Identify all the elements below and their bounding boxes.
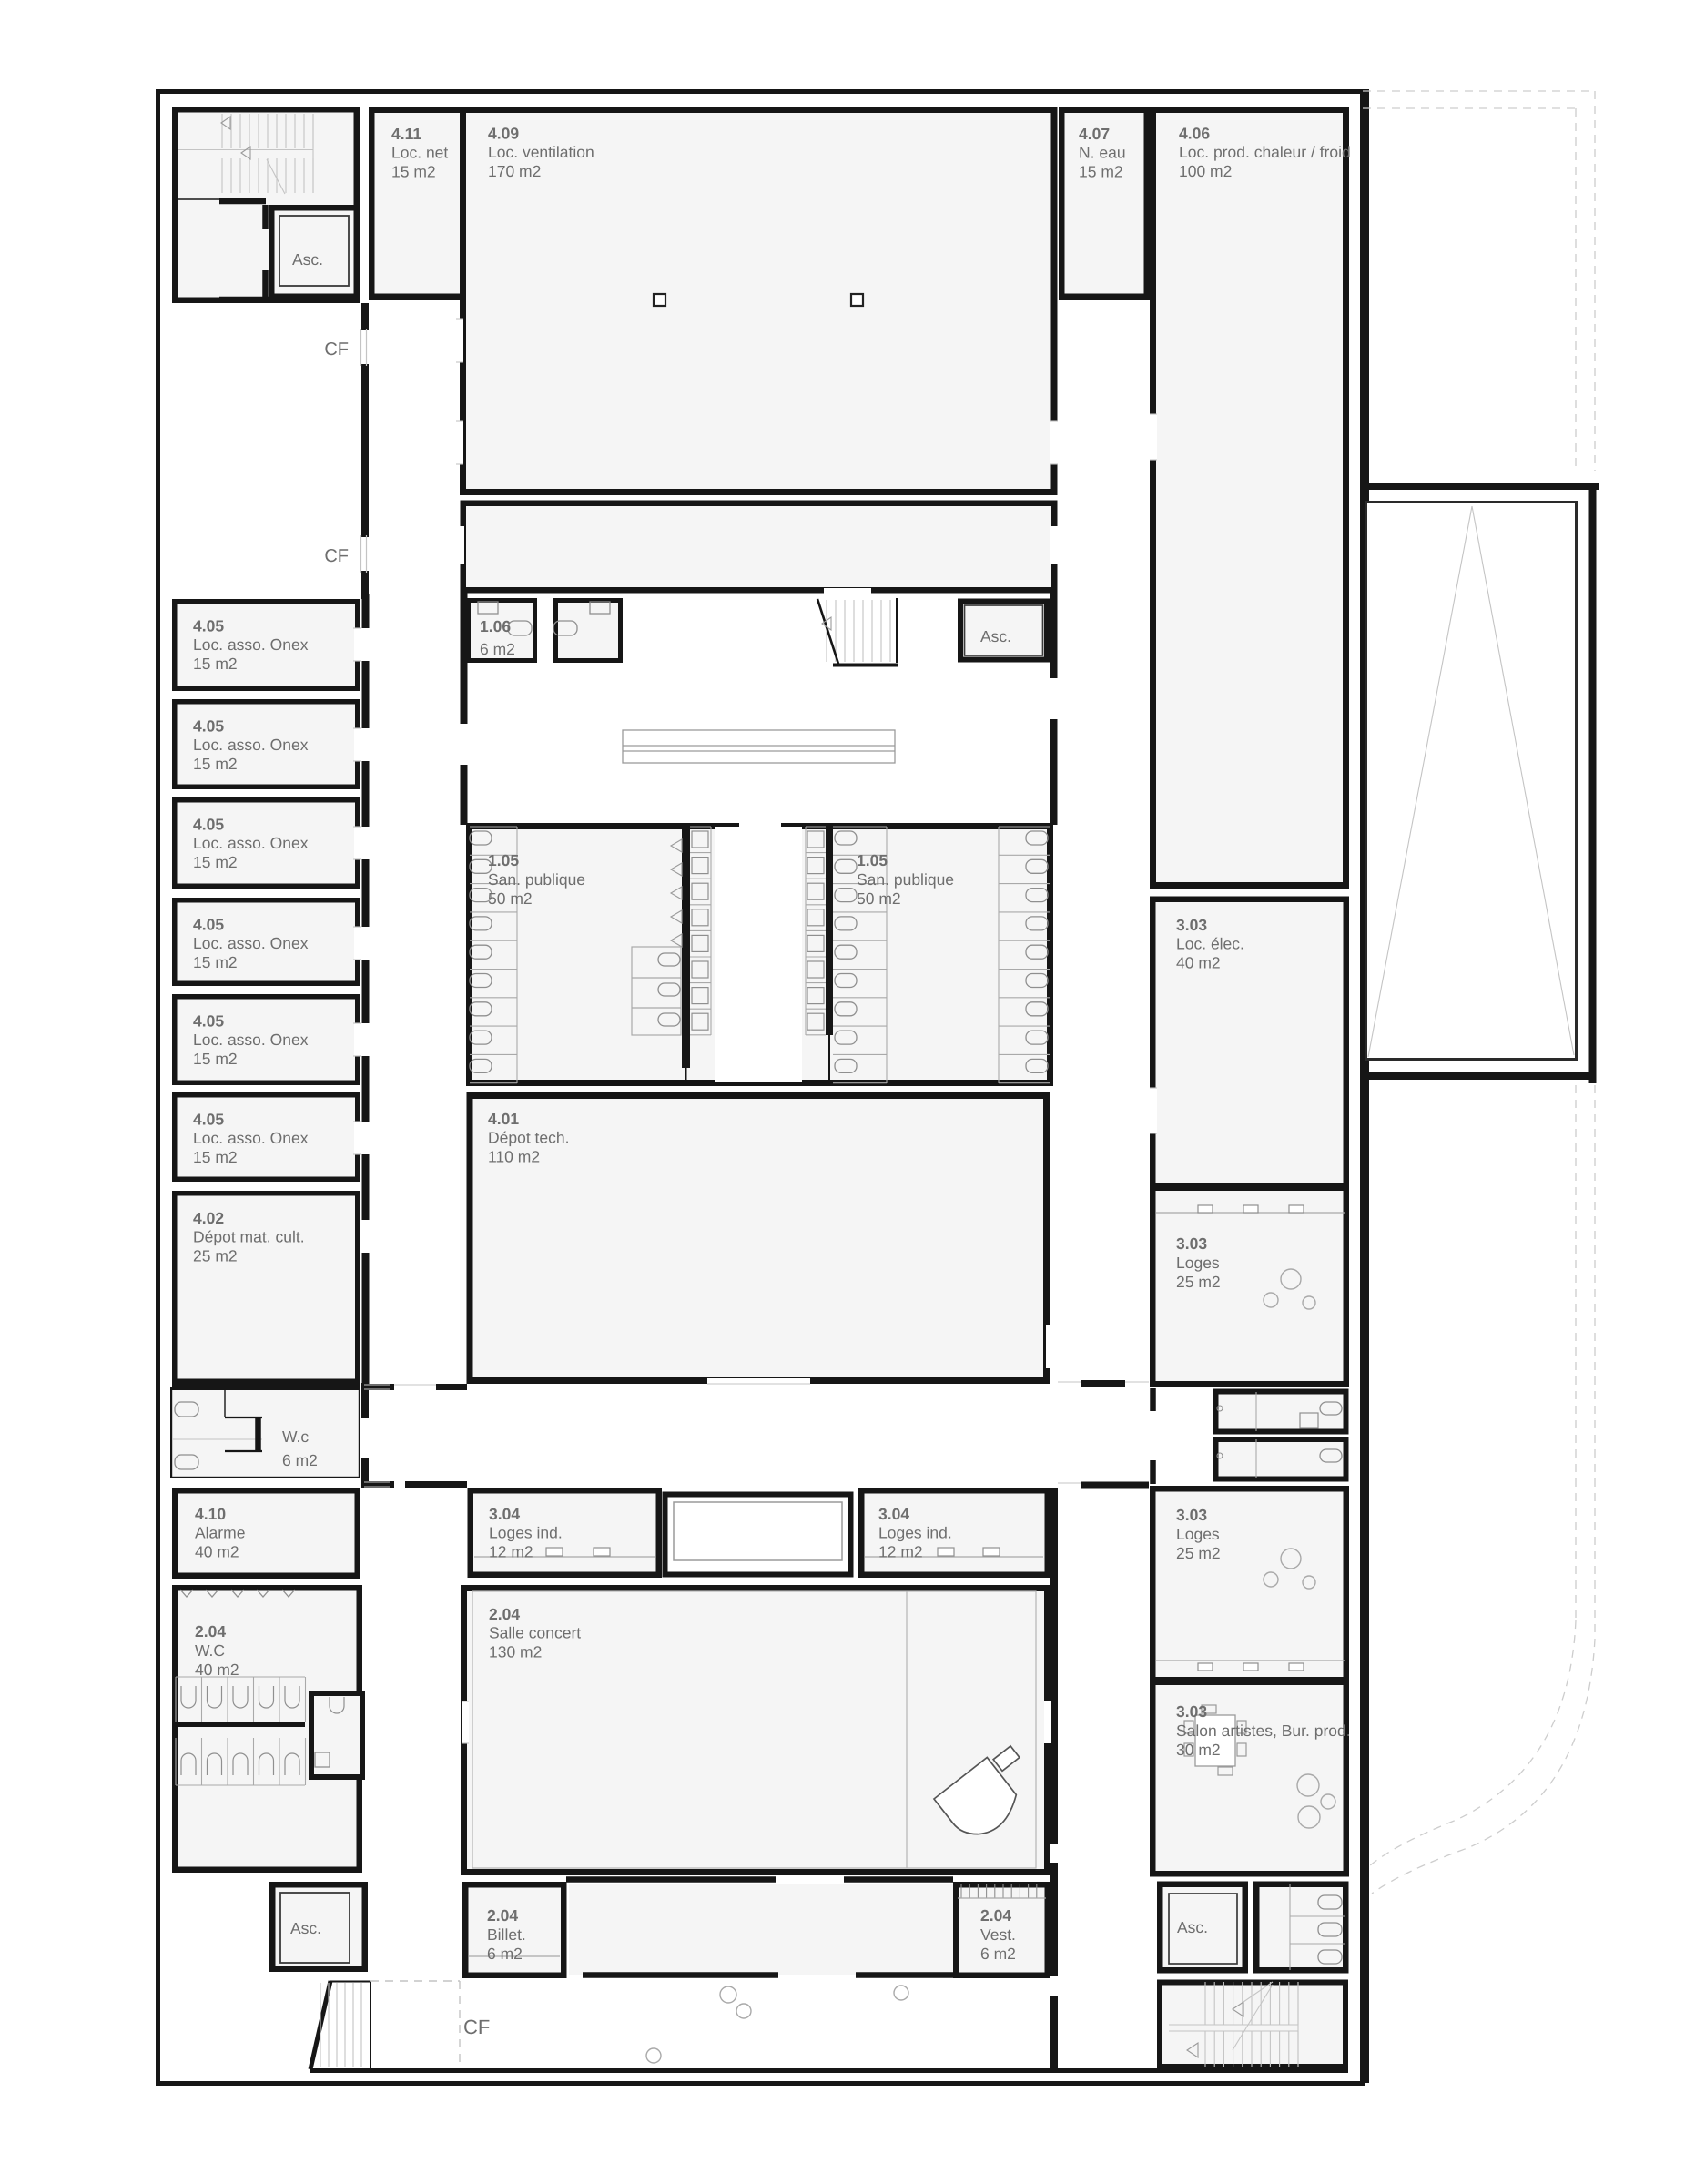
svg-text:2.04: 2.04 — [489, 1605, 520, 1623]
svg-text:6 m2: 6 m2 — [487, 1945, 523, 1963]
svg-text:3.03: 3.03 — [1176, 1702, 1207, 1721]
svg-text:25 m2: 25 m2 — [193, 1246, 238, 1265]
svg-text:4.09: 4.09 — [488, 125, 519, 143]
svg-text:2.04: 2.04 — [487, 1906, 518, 1925]
svg-text:1.05: 1.05 — [488, 851, 519, 869]
svg-text:Asc.: Asc. — [292, 250, 323, 269]
svg-text:Loges ind.: Loges ind. — [878, 1524, 952, 1542]
svg-text:Asc.: Asc. — [290, 1919, 321, 1937]
svg-text:Salon artistes, Bur. prod.: Salon artistes, Bur. prod. — [1176, 1722, 1351, 1740]
svg-text:CF: CF — [463, 2016, 490, 2038]
svg-text:2.04: 2.04 — [195, 1622, 226, 1641]
svg-text:Dépot mat. cult.: Dépot mat. cult. — [193, 1228, 305, 1246]
svg-text:Vest.: Vest. — [980, 1925, 1016, 1944]
svg-text:San. publique: San. publique — [857, 870, 954, 889]
svg-text:110 m2: 110 m2 — [488, 1147, 540, 1165]
svg-text:15 m2: 15 m2 — [193, 1050, 238, 1068]
svg-text:170 m2: 170 m2 — [488, 162, 541, 180]
svg-text:40 m2: 40 m2 — [195, 1661, 239, 1679]
svg-text:Loc. asso. Onex: Loc. asso. Onex — [193, 736, 309, 754]
svg-text:Loc. ventilation: Loc. ventilation — [488, 143, 594, 161]
svg-text:Loc. net: Loc. net — [391, 144, 448, 162]
svg-text:4.06: 4.06 — [1179, 125, 1210, 143]
svg-text:Loges ind.: Loges ind. — [489, 1524, 563, 1542]
svg-text:Billet.: Billet. — [487, 1925, 526, 1944]
svg-text:15 m2: 15 m2 — [193, 655, 238, 673]
svg-text:4.11: 4.11 — [391, 125, 421, 143]
svg-text:W.C: W.C — [195, 1641, 225, 1660]
svg-text:15 m2: 15 m2 — [193, 1148, 238, 1166]
svg-text:6 m2: 6 m2 — [282, 1451, 318, 1469]
svg-text:4.07: 4.07 — [1079, 125, 1110, 143]
svg-text:Dépot tech.: Dépot tech. — [488, 1129, 570, 1147]
svg-text:Asc.: Asc. — [980, 627, 1011, 645]
svg-text:Loc. asso. Onex: Loc. asso. Onex — [193, 834, 309, 852]
svg-text:CF: CF — [324, 340, 349, 360]
svg-text:12 m2: 12 m2 — [489, 1542, 533, 1560]
svg-text:4.01: 4.01 — [488, 1110, 519, 1128]
svg-text:15 m2: 15 m2 — [193, 853, 238, 871]
svg-text:15 m2: 15 m2 — [193, 953, 238, 971]
svg-text:Loc. asso. Onex: Loc. asso. Onex — [193, 1129, 309, 1147]
svg-text:15 m2: 15 m2 — [193, 755, 238, 773]
svg-text:4.05: 4.05 — [193, 617, 224, 635]
svg-text:4.10: 4.10 — [195, 1505, 226, 1523]
svg-text:1.05: 1.05 — [857, 851, 888, 869]
svg-text:Loc. asso. Onex: Loc. asso. Onex — [193, 1031, 309, 1049]
svg-text:Asc.: Asc. — [1177, 1918, 1208, 1936]
svg-text:Loges: Loges — [1176, 1254, 1220, 1272]
svg-text:15 m2: 15 m2 — [391, 162, 436, 180]
svg-text:3.04: 3.04 — [489, 1505, 520, 1523]
svg-text:40 m2: 40 m2 — [1176, 953, 1221, 971]
svg-text:CF: CF — [324, 546, 349, 566]
svg-text:4.05: 4.05 — [193, 816, 224, 834]
svg-text:50 m2: 50 m2 — [488, 889, 533, 908]
svg-text:130 m2: 130 m2 — [489, 1642, 542, 1661]
svg-text:2.04: 2.04 — [980, 1906, 1011, 1925]
svg-text:3.04: 3.04 — [878, 1505, 909, 1523]
svg-text:25 m2: 25 m2 — [1176, 1544, 1221, 1562]
svg-text:Loc. prod. chaleur / froid: Loc. prod. chaleur / froid — [1179, 143, 1351, 161]
svg-text:15 m2: 15 m2 — [1079, 162, 1123, 180]
svg-text:Loges: Loges — [1176, 1525, 1220, 1543]
svg-text:3.03: 3.03 — [1176, 1506, 1207, 1524]
svg-text:Alarme: Alarme — [195, 1524, 245, 1542]
svg-text:3.03: 3.03 — [1176, 916, 1207, 934]
svg-text:San. publique: San. publique — [488, 870, 585, 889]
svg-text:Loc. asso. Onex: Loc. asso. Onex — [193, 635, 309, 654]
svg-text:6 m2: 6 m2 — [480, 640, 515, 658]
svg-text:W.c: W.c — [282, 1427, 309, 1446]
svg-text:Loc. élec.: Loc. élec. — [1176, 935, 1244, 953]
svg-text:N. eau: N. eau — [1079, 144, 1126, 162]
svg-text:40 m2: 40 m2 — [195, 1542, 239, 1560]
svg-text:30 m2: 30 m2 — [1176, 1741, 1221, 1759]
svg-text:4.05: 4.05 — [193, 1012, 224, 1031]
svg-text:Loc. asso. Onex: Loc. asso. Onex — [193, 934, 309, 952]
svg-text:3.03: 3.03 — [1176, 1234, 1207, 1253]
svg-text:25 m2: 25 m2 — [1176, 1273, 1221, 1291]
svg-text:6 m2: 6 m2 — [980, 1945, 1016, 1963]
svg-text:Salle concert: Salle concert — [489, 1624, 581, 1642]
svg-text:4.02: 4.02 — [193, 1209, 224, 1227]
svg-text:1.06: 1.06 — [480, 617, 511, 635]
svg-text:4.05: 4.05 — [193, 1111, 224, 1129]
svg-text:50 m2: 50 m2 — [857, 889, 901, 908]
svg-text:100 m2: 100 m2 — [1179, 162, 1232, 180]
svg-text:12 m2: 12 m2 — [878, 1542, 923, 1560]
svg-text:4.05: 4.05 — [193, 717, 224, 736]
svg-text:4.05: 4.05 — [193, 916, 224, 934]
